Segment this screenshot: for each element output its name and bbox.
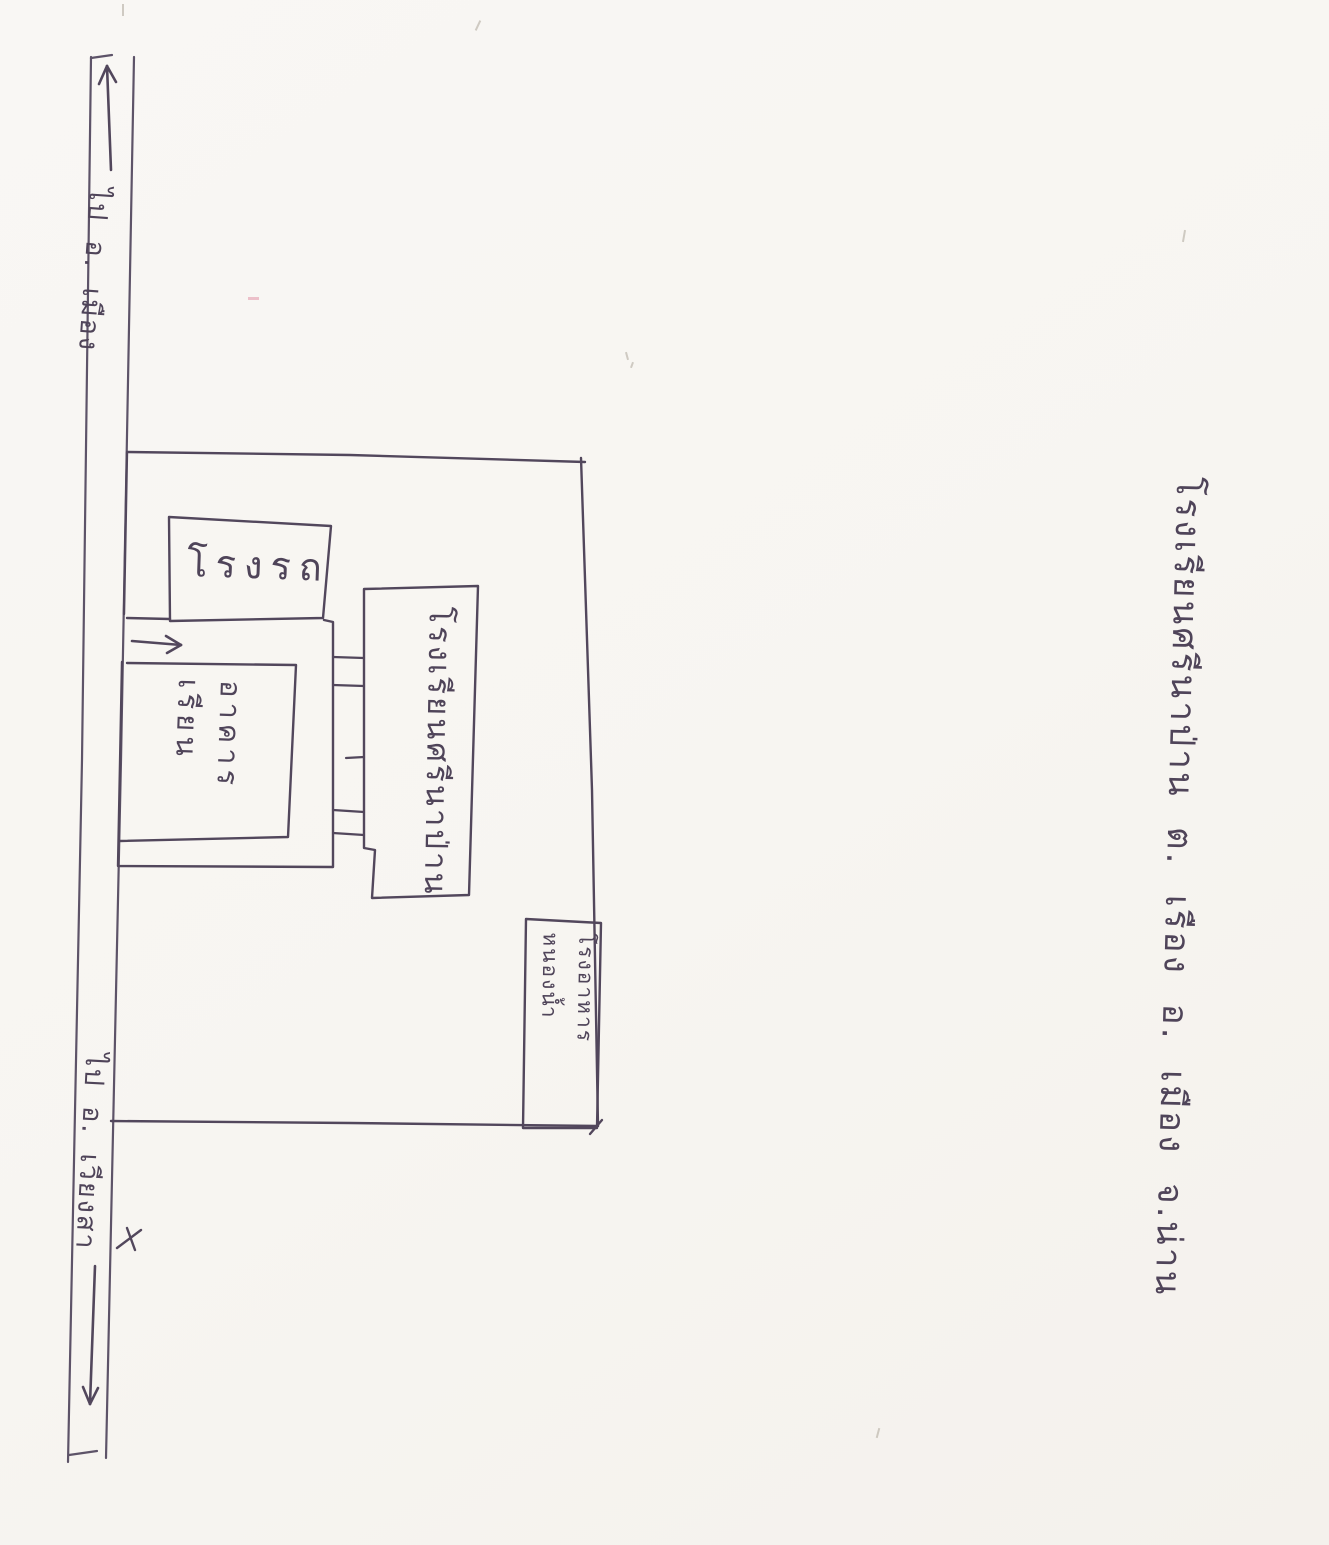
pencil-mark	[122, 4, 124, 16]
garage-road-link	[127, 618, 170, 619]
corner-building-label: โรงอาหาร หนองน้ำ	[529, 932, 604, 1123]
boundary-bottom	[111, 1121, 598, 1126]
school-building-label: โรงเรียนศรีนาป่าน	[411, 606, 460, 1031]
scan-artifact	[248, 297, 259, 300]
scanned-map-page: โรงเรียนศรีนาป่าน ต. เรือง อ. เมือง จ.น่…	[0, 0, 1329, 1545]
walkway-connectors	[333, 657, 364, 835]
boundary-top	[128, 452, 585, 462]
road-bottom-tick	[69, 1451, 97, 1455]
entrance-arrow-icon	[132, 636, 181, 653]
classroom-building-label: อาคาร เรียน	[162, 678, 252, 843]
up-arrow-icon	[99, 66, 116, 170]
boundary-left-upper	[124, 452, 127, 614]
garage-label: โรงรถ	[186, 538, 331, 594]
road-top-tick	[91, 55, 112, 58]
road-label-end-mark	[117, 1228, 141, 1250]
